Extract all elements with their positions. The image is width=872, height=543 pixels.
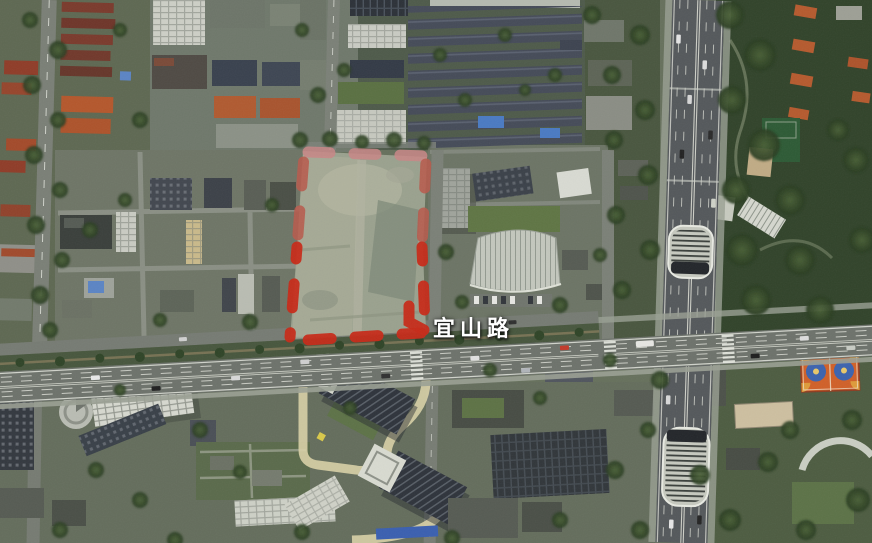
grain-overlay: [0, 0, 872, 543]
road-label: 宜山路: [433, 311, 514, 343]
satellite-map: 宜山路: [0, 0, 872, 543]
map-canvas: [0, 0, 872, 543]
